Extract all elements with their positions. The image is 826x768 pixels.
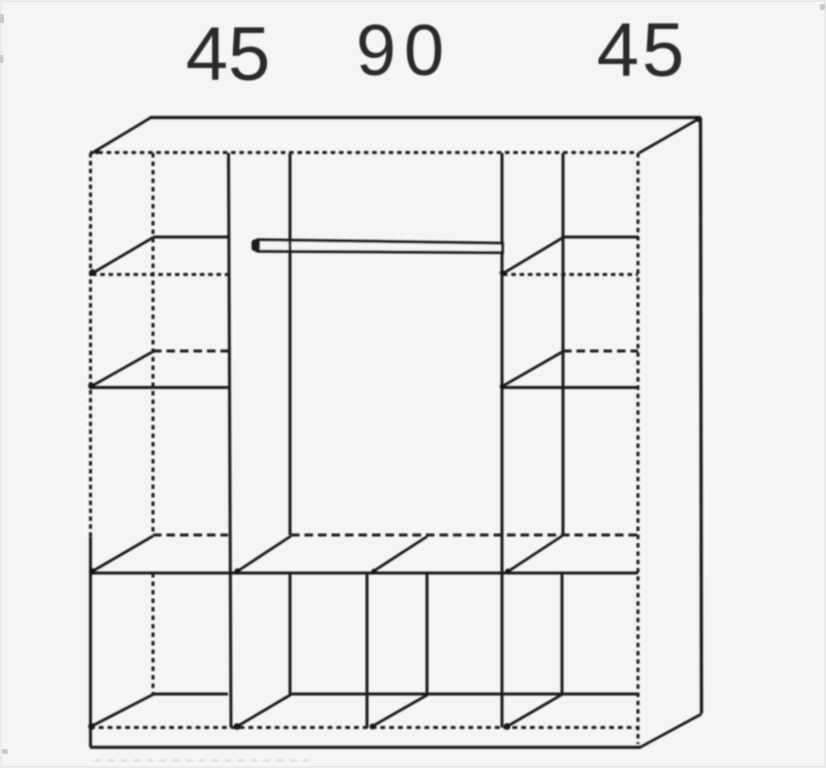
svg-text:45: 45 (186, 12, 271, 97)
svg-text:45: 45 (597, 8, 688, 93)
svg-text:90: 90 (356, 11, 452, 91)
